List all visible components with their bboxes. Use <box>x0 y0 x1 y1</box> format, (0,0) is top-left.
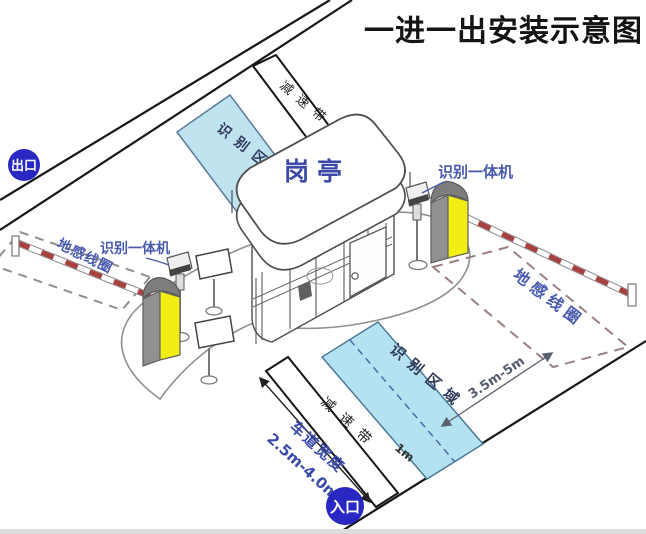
diagram-canvas: 一进一出安装示意图 减速带 识别区域 地感线圈 地感线圈 识别区域 1m 减速带 <box>0 0 646 534</box>
exit-badge-text: 出口 <box>11 158 37 174</box>
bottom-edge-strip <box>0 529 646 534</box>
arm-tip-support <box>12 236 19 256</box>
barrier-machine-entry <box>431 182 468 263</box>
machine-front <box>448 195 468 258</box>
booth-door-knob <box>352 273 358 279</box>
camera-bracket <box>413 204 421 220</box>
arm-tip-support <box>628 284 636 306</box>
booth-label: 岗亭 <box>284 157 350 186</box>
machine-side <box>431 195 448 263</box>
entrance-badge: 入口 <box>326 487 364 525</box>
camera-label-entry-text: 识别一体机 <box>438 163 513 181</box>
exit-badge: 出口 <box>8 149 40 181</box>
installation-diagram-page: 一进一出安装示意图 减速带 识别区域 地感线圈 地感线圈 识别区域 1m 减速带 <box>0 0 646 534</box>
barrier-machine-exit <box>143 278 180 366</box>
machine-side <box>143 291 160 366</box>
sign-board-base <box>206 307 222 315</box>
camera-base <box>409 261 427 270</box>
machine-front <box>160 291 180 360</box>
page-title: 一进一出安装示意图 <box>364 14 643 49</box>
entrance-badge-text: 入口 <box>330 498 360 516</box>
camera-label-exit-text: 识别一体机 <box>100 240 170 257</box>
sign-board-base <box>201 376 217 384</box>
